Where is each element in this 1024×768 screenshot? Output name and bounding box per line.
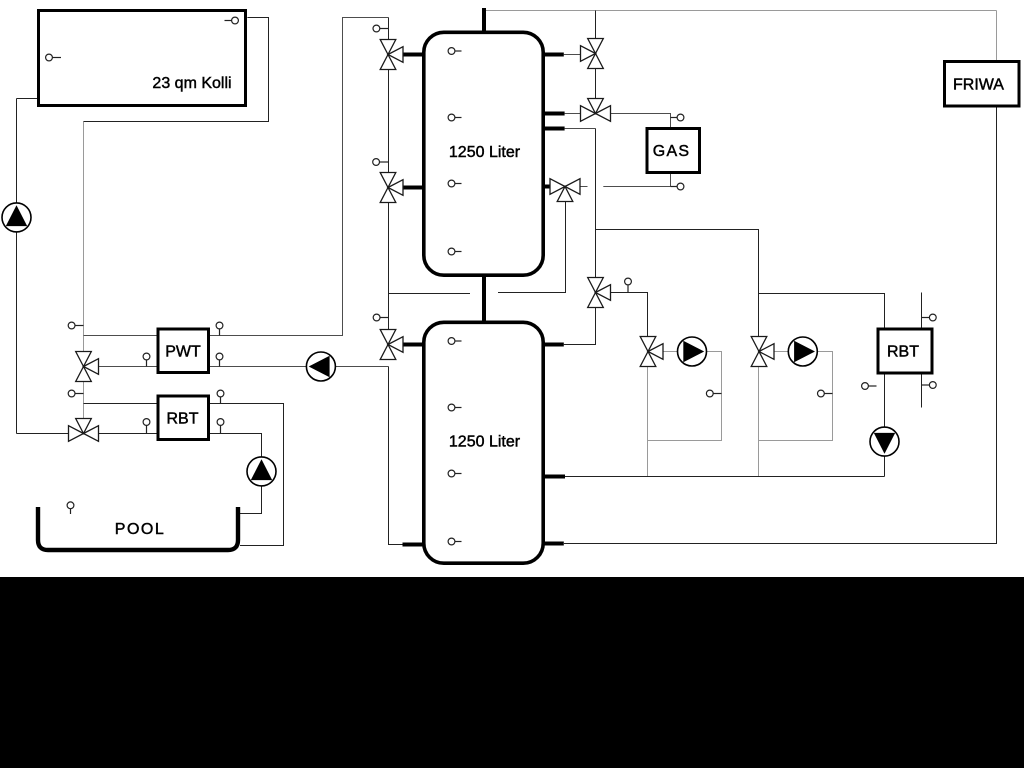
svg-text:RBT: RBT [167,411,199,428]
svg-text:RBT: RBT [887,344,919,361]
svg-text:23 qm Kolli: 23 qm Kolli [152,75,231,92]
svg-text:1250 Liter: 1250 Liter [449,434,521,451]
svg-text:FRIWA: FRIWA [953,77,1004,94]
svg-text:GAS: GAS [653,143,690,160]
svg-text:PWT: PWT [165,344,201,361]
svg-text:1250 Liter: 1250 Liter [449,144,521,161]
svg-text:POOL: POOL [115,521,165,538]
